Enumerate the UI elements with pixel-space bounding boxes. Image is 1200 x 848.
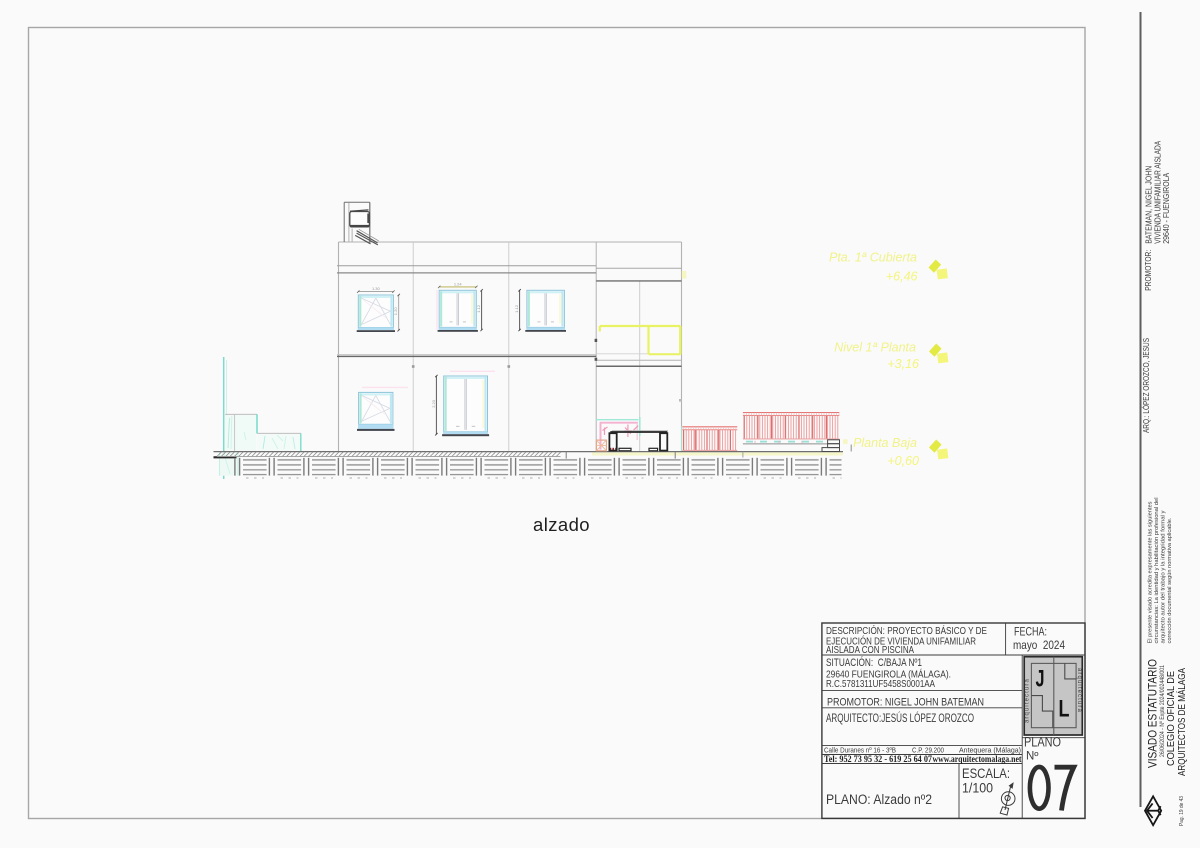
svg-text:29640 - FUENGIROLA: 29640 - FUENGIROLA (1162, 172, 1171, 244)
svg-text:PLANO: PLANO (1024, 735, 1061, 750)
svg-text:ARQUITECTO:JESÚS LÓPEZ OROZCO: ARQUITECTO:JESÚS LÓPEZ OROZCO (826, 711, 974, 725)
svg-text:1.24: 1.24 (454, 281, 463, 286)
svg-text:PLANO: Alzado nº2: PLANO: Alzado nº2 (826, 792, 932, 807)
svg-text:1.12: 1.12 (514, 304, 519, 313)
svg-text:+0,60: +0,60 (887, 454, 919, 468)
svg-text:Nivel 1ª Planta: Nivel 1ª Planta (834, 341, 916, 355)
svg-text:El presente visado acredita ex: El presente visado acredita expresamente… (1148, 501, 1154, 643)
svg-text:COLEGIO OFICIAL DE: COLEGIO OFICIAL DE (1166, 671, 1177, 766)
svg-text:ARQ.: LÓPEZ OROZCO, JESUS: ARQ.: LÓPEZ OROZCO, JESUS (1142, 338, 1151, 433)
svg-text:1.30: 1.30 (372, 286, 381, 291)
svg-text:arquitectura: arquitectura (1076, 668, 1082, 713)
svg-text:Nº: Nº (1026, 751, 1039, 763)
svg-text:1.12: 1.12 (476, 304, 481, 313)
svg-text:+6,46: +6,46 (886, 270, 918, 284)
svg-text:mayo 2024: mayo 2024 (1013, 638, 1065, 652)
svg-text:2.20: 2.20 (431, 399, 436, 408)
svg-text:DESCRIPCIÓN: PROYECTO BÁSICO Y: DESCRIPCIÓN: PROYECTO BÁSICO Y DE (826, 624, 987, 637)
svg-text:ESCALA:: ESCALA: (962, 766, 1010, 781)
svg-text:Pta. 1ª Cubierta: Pta. 1ª Cubierta (829, 251, 917, 265)
svg-text:Planta Baja: Planta Baja (853, 436, 917, 450)
svg-text:arquitecto autor del trabajo y: arquitecto autor del trabajo y la integr… (1161, 510, 1167, 643)
svg-text:PROMOTOR: NIGEL JOHN BATEMAN: PROMOTOR: NIGEL JOHN BATEMAN (827, 696, 984, 708)
svg-text:arquitectura: arquitectura (1024, 678, 1030, 723)
svg-text:VIVIENDA UNIFAMILIAR AISLADA: VIVIENDA UNIFAMILIAR AISLADA (1153, 140, 1162, 244)
svg-text:corrección documental según no: corrección documental según normativa ap… (1167, 518, 1173, 644)
svg-text:FECHA:: FECHA: (1014, 625, 1047, 639)
svg-text:AISLADA CON PISCINA: AISLADA CON PISCINA (826, 645, 914, 656)
svg-text:circunstancias: La identidad y: circunstancias: La identidad y habilitac… (1154, 498, 1160, 644)
svg-text:Pag. 19 de 43: Pag. 19 de 43 (1179, 796, 1185, 826)
svg-text:L: L (1059, 696, 1070, 723)
svg-text:1/100: 1/100 (962, 781, 993, 796)
svg-text:J: J (1036, 666, 1045, 693)
svg-text:ARQUITECTOS DE MÁLAGA: ARQUITECTOS DE MÁLAGA (1175, 668, 1188, 776)
svg-text:PROMOTOR:: PROMOTOR: (1144, 250, 1153, 291)
svg-text:+3,16: +3,16 (887, 357, 919, 371)
svg-text:VISADO ESTATUTARIO: VISADO ESTATUTARIO (1147, 659, 1159, 768)
svg-text:1.20: 1.20 (393, 307, 398, 316)
svg-text:SITUACIÓN: C/BAJA Nº1: SITUACIÓN: C/BAJA Nº1 (826, 656, 922, 669)
svg-text:www.arquitectomalaga.net: www.arquitectomalaga.net (933, 754, 1023, 764)
svg-text:26/06/2024 - Nº Expte 2024/002: 26/06/2024 - Nº Expte 2024/002448/001 (1159, 665, 1166, 757)
svg-text:alzado: alzado (533, 514, 590, 535)
svg-text:R.C.5781311UF5458S0001AA: R.C.5781311UF5458S0001AA (826, 679, 935, 690)
svg-text:BATEMAN, NIGEL JOHN: BATEMAN, NIGEL JOHN (1145, 166, 1154, 244)
svg-text:Tel: 952 73 95 32 - 619 25 64: Tel: 952 73 95 32 - 619 25 64 07 (824, 754, 932, 764)
